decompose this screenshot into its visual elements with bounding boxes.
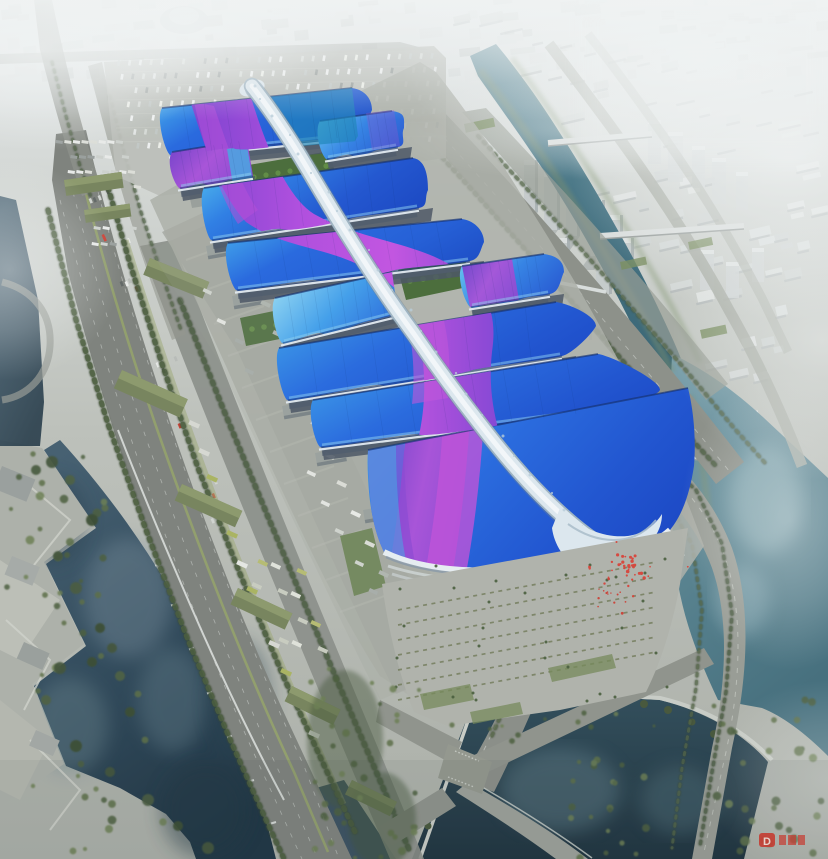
svg-text:D: D [763, 836, 771, 848]
